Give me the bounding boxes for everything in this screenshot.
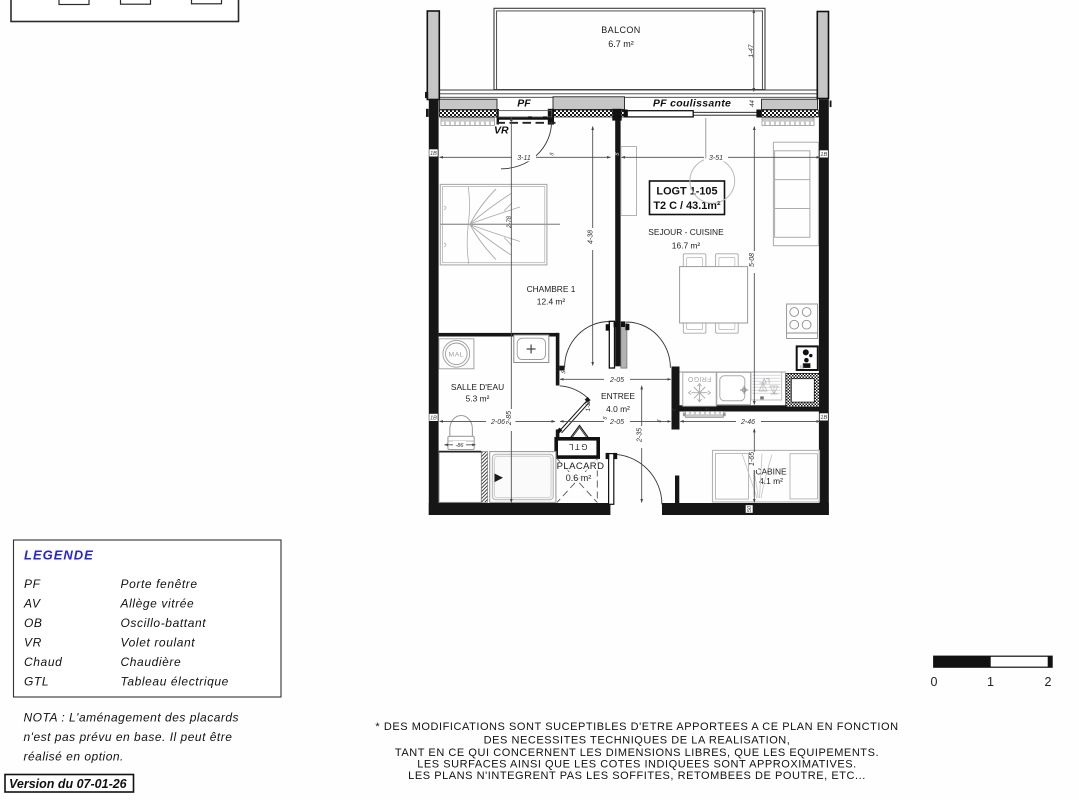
svg-text:VR: VR [494,125,509,137]
svg-text:2-78: 2-78 [507,215,513,229]
svg-text:3-11: 3-11 [517,155,531,162]
svg-text:1-65: 1-65 [749,452,756,466]
svg-text:BALCON: BALCON [601,25,640,35]
svg-text:3-51: 3-51 [709,155,723,162]
svg-text:Oscillo-battant: Oscillo-battant [121,616,207,630]
svg-text:1B: 1B [820,152,827,158]
svg-text:Volet roulant: Volet roulant [121,636,196,650]
svg-text:1B: 1B [820,415,827,421]
svg-text:2: 2 [1045,675,1052,689]
svg-text:GTL: GTL [567,442,587,451]
svg-text:LEGENDE: LEGENDE [24,548,94,563]
svg-text:0: 0 [931,675,938,689]
svg-text:Chaudière: Chaudière [121,655,182,669]
svg-text:44: 44 [750,100,756,107]
svg-text:5-08: 5-08 [749,253,756,267]
svg-text:n'est pas prévu en base. Il pe: n'est pas prévu en base. Il peut être [24,730,233,744]
svg-text:FRIGO: FRIGO [687,375,711,382]
svg-text:Chaud: Chaud [24,655,62,669]
svg-text:Porte fenêtre: Porte fenêtre [121,577,198,591]
svg-text:réalisé en option.: réalisé en option. [24,750,124,764]
svg-text:SALLE D'EAU: SALLE D'EAU [451,382,504,392]
svg-text:2-06: 2-06 [490,419,505,426]
svg-text:CHAMBRE 1: CHAMBRE 1 [527,284,576,294]
svg-text:4.0 m²: 4.0 m² [606,404,630,414]
svg-text:2-35: 2-35 [637,428,644,443]
svg-text:62: 62 [800,364,805,369]
svg-text:2-05: 2-05 [609,377,624,384]
svg-text:0.6 m²: 0.6 m² [566,473,592,483]
svg-text:4-38: 4-38 [588,230,595,244]
svg-text:OB: OB [24,616,43,630]
svg-text:VR: VR [24,636,42,650]
svg-text:PF coulissante: PF coulissante [653,98,731,110]
svg-text:12.4 m²: 12.4 m² [537,297,566,307]
svg-text:1: 1 [987,675,994,689]
svg-text:NOTA : L'aménagement des placa: NOTA : L'aménagement des placards [24,711,240,725]
svg-text:2-85: 2-85 [506,411,513,426]
svg-text:SEJOUR - CUISINE: SEJOUR - CUISINE [648,227,724,237]
svg-text:TANT EN CE QUI CONCERNENT LES: TANT EN CE QUI CONCERNENT LES DIMENSIONS… [395,747,879,759]
svg-text:Tableau électrique: Tableau électrique [121,675,229,689]
svg-text:5: 5 [602,415,609,420]
svg-text:1B: 1B [430,416,437,422]
svg-text:T2 C / 43.1m²: T2 C / 43.1m² [653,200,721,212]
svg-text:1B: 1B [430,151,437,157]
svg-text:ENTREE: ENTREE [601,391,635,401]
svg-text:DES NECESSITES TECHNIQUES DE L: DES NECESSITES TECHNIQUES DE LA REALISAT… [484,735,791,747]
svg-text:4.1 m²: 4.1 m² [759,476,783,486]
svg-text:PLACARD: PLACARD [557,461,605,472]
svg-text:Version du 07-01-26: Version du 07-01-26 [9,777,128,791]
svg-text:5: 5 [549,151,556,156]
svg-text:LV: LV [762,376,770,383]
svg-text:6.7 m²: 6.7 m² [608,39,634,49]
svg-text:* DES MODIFICATIONS SONT SUCEP: * DES MODIFICATIONS SONT SUCEPTIBLES D'E… [375,721,898,733]
svg-text:MAL: MAL [449,352,464,359]
svg-text:PF: PF [517,98,531,110]
svg-text:1-20: 1-20 [585,398,592,411]
svg-text:LOGT 1-105: LOGT 1-105 [656,186,717,198]
svg-text:Allège vitrée: Allège vitrée [120,597,195,611]
svg-text:CABINE: CABINE [755,467,787,477]
svg-text:LES PLANS N'INTEGRENT PAS LES: LES PLANS N'INTEGRENT PAS LES SOFFITES, … [408,770,866,782]
svg-text:GTL: GTL [24,675,49,689]
svg-text:16.7 m²: 16.7 m² [672,241,701,251]
svg-text:50: 50 [747,505,753,512]
svg-text:5: 5 [656,418,663,423]
svg-text:1-47: 1-47 [748,44,755,57]
svg-text:2-46: 2-46 [740,419,755,426]
svg-text:LES SURFACES AINSI QUE LES COT: LES SURFACES AINSI QUE LES COTES INDIQUE… [417,759,857,771]
svg-text:-86: -86 [456,443,465,449]
svg-text:5.3 m²: 5.3 m² [466,394,490,404]
svg-text:2-05: 2-05 [609,419,624,426]
svg-text:PF: PF [24,577,41,591]
svg-text:AV: AV [23,597,41,611]
